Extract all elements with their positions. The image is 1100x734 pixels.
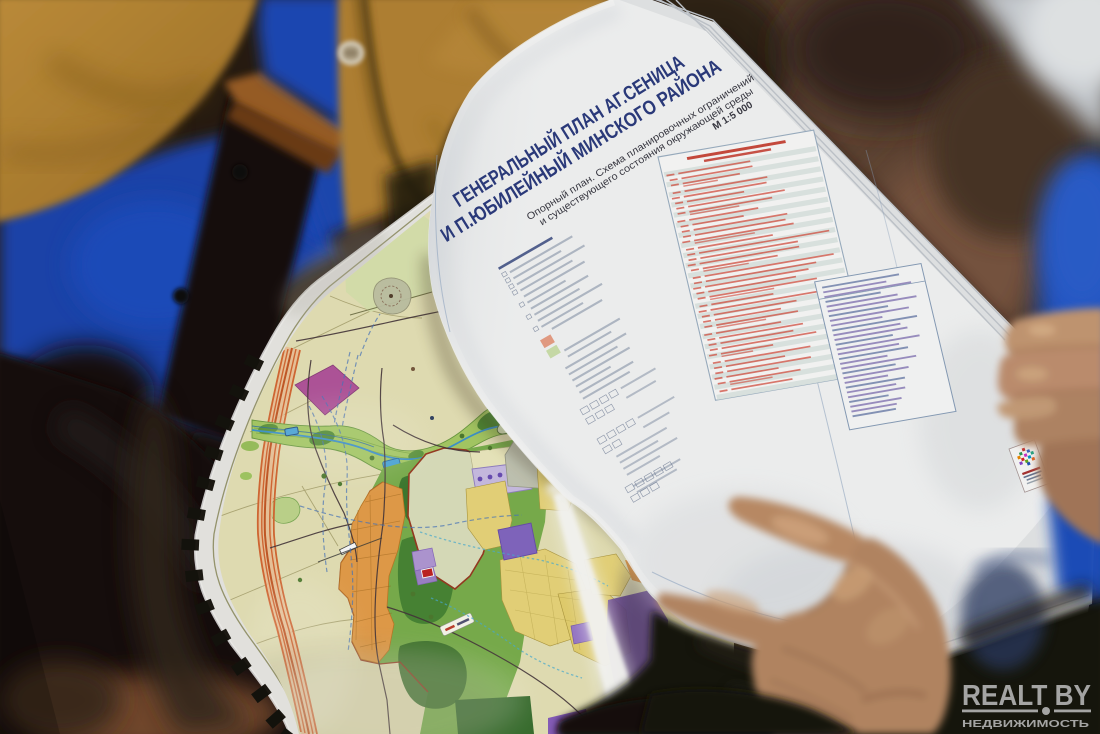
svg-text:REALT BY: REALT BY [962,680,1091,712]
svg-text:НЕДВИЖИМОСТЬ: НЕДВИЖИМОСТЬ [962,719,1089,730]
